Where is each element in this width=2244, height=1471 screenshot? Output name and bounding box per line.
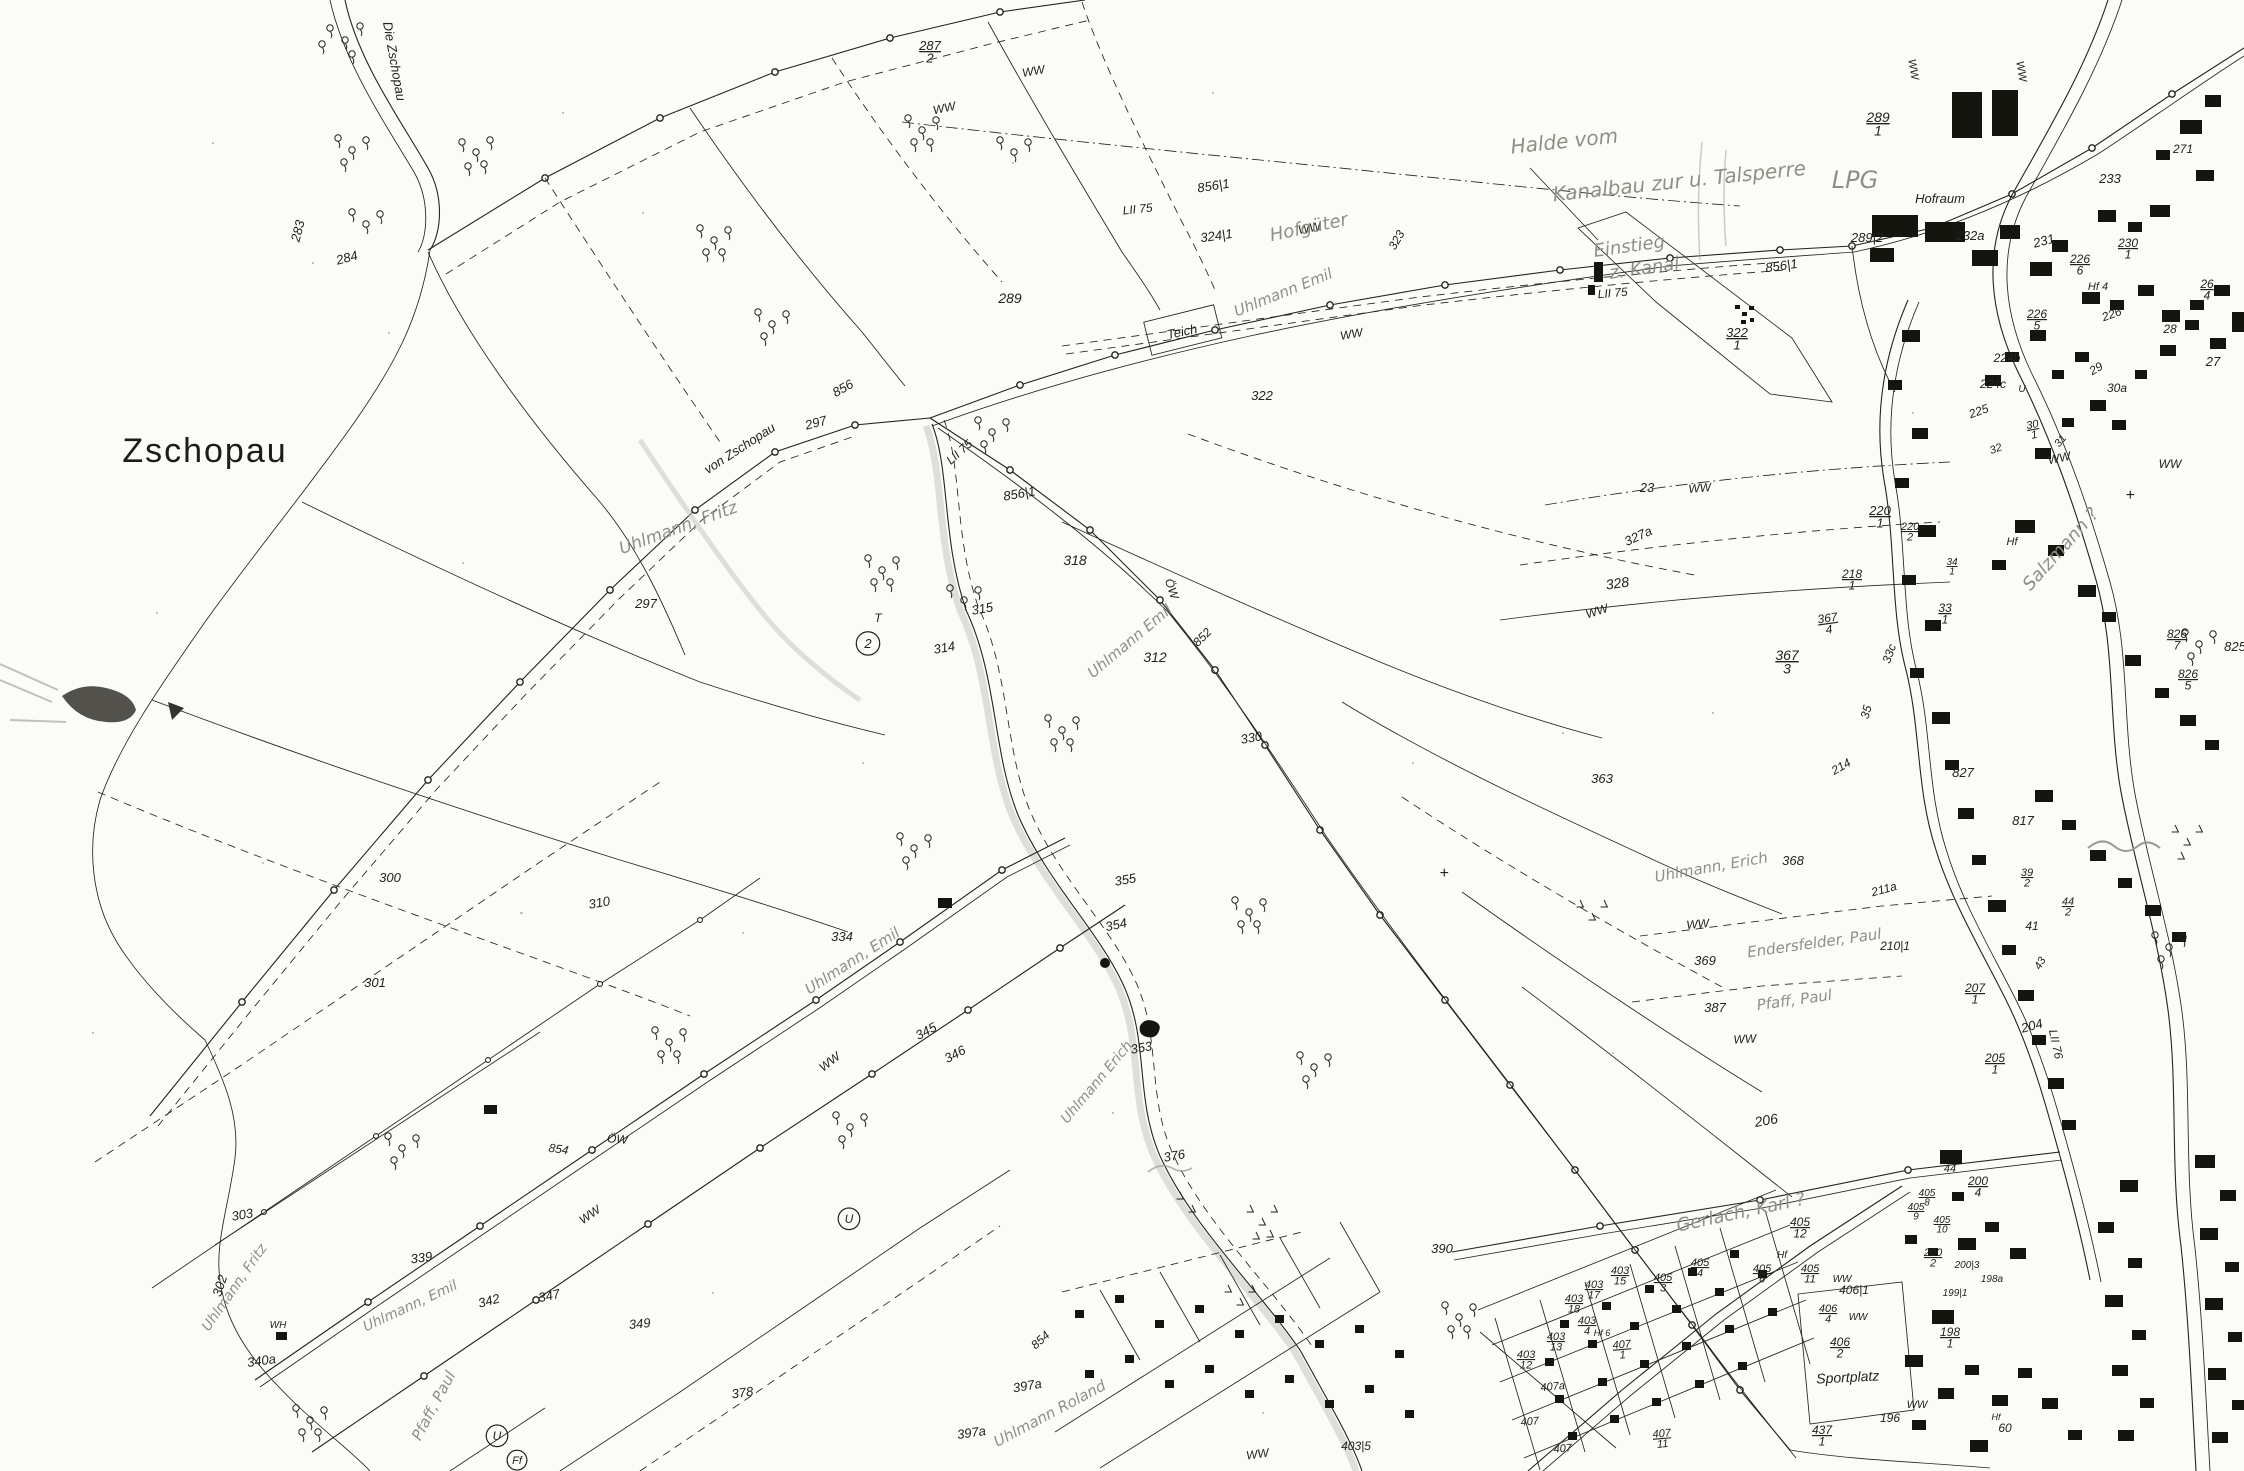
- svg-text:376: 376: [1162, 1146, 1187, 1165]
- svg-text:35: 35: [1858, 703, 1875, 720]
- svg-text:WW: WW: [816, 1048, 844, 1074]
- map-label-403-15: 40315: [1611, 1265, 1630, 1287]
- svg-text:852: 852: [1190, 625, 1214, 649]
- map-label-323: 323: [1385, 228, 1407, 253]
- svg-text:Hf: Hf: [1992, 1412, 2002, 1422]
- map-label-43: 43: [2032, 954, 2049, 971]
- map-label-271: 271: [2172, 142, 2193, 156]
- map-label-363: 363: [1591, 771, 1613, 786]
- svg-text:40315: 40315: [1611, 1265, 1630, 1287]
- svg-text:334: 334: [831, 929, 853, 944]
- map-label-sportplatz: Sportplatz: [1816, 1367, 1880, 1386]
- svg-text:346: 346: [942, 1042, 969, 1066]
- map-label-314: 314: [932, 638, 956, 657]
- map-label-230-1: 2301: [2117, 236, 2138, 261]
- map-label-hf-6: Hf 6: [1594, 1328, 1611, 1338]
- svg-text:60: 60: [1998, 1421, 2012, 1435]
- svg-text:Uhlmann, Fritz: Uhlmann, Fritz: [199, 1241, 271, 1335]
- svg-text:40313: 40313: [1547, 1331, 1566, 1353]
- svg-text:856|1: 856|1: [1196, 176, 1230, 196]
- map-label-322-1: 3221: [1726, 325, 1748, 352]
- svg-text:Uhlmann Erich: Uhlmann Erich: [1058, 1038, 1136, 1127]
- map-label-403-5: 403|5: [1341, 1439, 1371, 1453]
- svg-text:Pfaff, Paul: Pfaff, Paul: [408, 1367, 460, 1443]
- svg-text:301: 301: [2025, 418, 2042, 442]
- map-label-403-12: 40312: [1517, 1349, 1536, 1371]
- map-label-ww: WW: [1907, 1399, 1929, 1411]
- svg-text:32: 32: [1988, 441, 2004, 456]
- svg-text:300: 300: [379, 870, 401, 885]
- map-label-376: 376: [1162, 1146, 1187, 1165]
- svg-text:2872: 2872: [918, 38, 941, 65]
- map-label-ww: WW: [1733, 1031, 1758, 1046]
- svg-text:Pfaff, Paul: Pfaff, Paul: [1756, 986, 1834, 1014]
- map-label-342: 342: [476, 1290, 502, 1310]
- svg-text:WW: WW: [1907, 1399, 1929, 1411]
- map-label-207-1: 2071: [1964, 981, 1986, 1006]
- map-label-uhlmann-emil: Uhlmann Emil: [1231, 264, 1336, 320]
- map-label-403-18: 40318: [1565, 1293, 1584, 1315]
- map-label-353: 353: [1129, 1038, 1154, 1057]
- svg-text:856: 856: [830, 376, 857, 400]
- svg-text:198a: 198a: [1981, 1274, 2004, 1285]
- svg-text:40317: 40317: [1585, 1279, 1604, 1301]
- map-label-289: 289: [997, 290, 1022, 306]
- canal-stream: [926, 420, 1362, 1471]
- map-label-halde-vom: Halde vom: [1509, 123, 1619, 158]
- map-label-406-2: 4062: [1830, 1335, 1850, 1360]
- svg-text:Gerlach, Karl ?: Gerlach, Karl ?: [1675, 1189, 1808, 1237]
- map-label-w: ÖW: [606, 1131, 629, 1147]
- svg-text:324|1: 324|1: [1199, 226, 1233, 245]
- svg-text:44: 44: [1944, 1163, 1956, 1175]
- map-label-hf: Hf: [2007, 536, 2019, 548]
- svg-text:WW: WW: [2159, 457, 2183, 471]
- map-label-ww: WW: [1849, 1312, 1869, 1323]
- map-label-347: 347: [537, 1286, 562, 1305]
- svg-text:LPG: LPG: [1832, 166, 1878, 194]
- map-label-405-12: 40512: [1790, 1215, 1810, 1240]
- svg-text:Hofraum: Hofraum: [1915, 191, 1965, 206]
- svg-text:312: 312: [1143, 649, 1167, 665]
- svg-text:339: 339: [410, 1249, 434, 1267]
- map-label-28: 28: [2162, 322, 2177, 336]
- map-label-407a: 407a: [1540, 1380, 1565, 1394]
- map-label-405-3: 4053: [1654, 1272, 1673, 1294]
- svg-text:264: 264: [2199, 277, 2214, 302]
- map-label-437-1: 4371: [1812, 1423, 1833, 1448]
- map-label-ww: WW: [1905, 58, 1921, 82]
- svg-text:322: 322: [1251, 388, 1273, 403]
- svg-text:+: +: [1439, 865, 1448, 882]
- map-label-378: 378: [731, 1384, 755, 1402]
- map-label-w: ÖW: [1162, 577, 1182, 603]
- svg-text:856|1: 856|1: [1002, 483, 1036, 503]
- map-label-33c: 33c: [1879, 642, 1899, 665]
- map-label-u: U: [486, 1425, 508, 1447]
- map-label-355: 355: [1113, 870, 1138, 889]
- svg-text:28: 28: [2162, 322, 2177, 336]
- map-label-826-5: 8265: [2178, 667, 2198, 692]
- svg-text:283: 283: [287, 218, 308, 245]
- svg-text:40511: 40511: [1801, 1263, 1820, 1285]
- map-label-334: 334: [831, 929, 853, 944]
- map-label-60: 60: [1998, 1421, 2012, 1435]
- map-label-283: 283: [287, 218, 308, 245]
- svg-text:196: 196: [1880, 1411, 1900, 1425]
- svg-text:407: 407: [1553, 1442, 1573, 1456]
- map-label-27: 27: [2205, 354, 2221, 369]
- map-label-346: 346: [942, 1042, 969, 1066]
- map-label-44: 44: [1944, 1163, 1956, 1175]
- map-label-318: 318: [1063, 552, 1087, 568]
- sportplatz-outline: [1798, 1282, 1914, 1424]
- svg-text:284: 284: [333, 248, 359, 268]
- map-label-hofg-ter: Hofgüter: [1268, 209, 1351, 246]
- svg-text:289: 289: [997, 290, 1022, 306]
- svg-text:WW: WW: [1905, 58, 1921, 82]
- svg-text:WW: WW: [1021, 62, 1047, 80]
- svg-text:WW: WW: [1849, 1312, 1869, 1323]
- map-label-hf-4: Hf 4: [2088, 281, 2108, 293]
- svg-text:Uhlmann Emil: Uhlmann Emil: [1231, 264, 1336, 320]
- map-label-wh: WH: [270, 1320, 287, 1331]
- map-label-lii-75: LII 75: [943, 437, 975, 468]
- map-label-322: 322: [1251, 388, 1273, 403]
- svg-text:342: 342: [476, 1290, 502, 1310]
- map-label-198a: 198a: [1981, 1274, 2004, 1285]
- map-label-32: 32: [1988, 441, 2004, 456]
- map-label-854: 854: [1028, 1328, 1052, 1352]
- svg-text:ÖW: ÖW: [1162, 577, 1182, 603]
- svg-text:8265: 8265: [2178, 667, 2198, 692]
- svg-text:4054: 4054: [1691, 1257, 1710, 1279]
- svg-text:206: 206: [1752, 1110, 1779, 1130]
- svg-text:854: 854: [1028, 1328, 1052, 1352]
- map-label-endersfelder-paul: Endersfelder, Paul: [1746, 925, 1883, 962]
- map-label-405-10: 40510: [1934, 1215, 1951, 1236]
- svg-text:2202: 2202: [1900, 521, 1920, 543]
- map-label-204: 204: [2018, 1016, 2044, 1036]
- map-label-856-1: 856|1: [1764, 256, 1798, 275]
- map-label-von-zschopau: von Zschopau: [701, 420, 778, 477]
- map-label-hofraum: Hofraum: [1915, 191, 1965, 206]
- map-label-200-3: 200|3: [1954, 1260, 1980, 1271]
- svg-text:392: 392: [2021, 867, 2033, 889]
- map-label-ww: WW: [1339, 325, 1365, 343]
- map-label-uhlmann-emil: Uhlmann Emil: [1084, 600, 1176, 682]
- svg-text:340a: 340a: [246, 1351, 277, 1370]
- map-label-uhlmann-fritz: Uhlmann, Fritz: [616, 497, 741, 559]
- map-label-297: 297: [802, 412, 829, 433]
- svg-text:354: 354: [1104, 915, 1128, 934]
- svg-text:WW: WW: [576, 1202, 604, 1227]
- map-canvas: ZschopauDie Zschopau2832842872WWWW289297…: [0, 0, 2244, 1471]
- svg-text:LII 75: LII 75: [1597, 285, 1628, 302]
- map-label-856-1: 856|1: [1196, 176, 1230, 196]
- map-label-403-13: 40313: [1547, 1331, 1566, 1353]
- svg-text:Hf 4: Hf 4: [2088, 281, 2108, 293]
- map-label-397a: 397a: [956, 1423, 987, 1442]
- svg-text:345: 345: [913, 1019, 940, 1043]
- map-label-2: 2: [856, 632, 879, 655]
- map-label-ww: WW: [2159, 457, 2183, 471]
- map-label-289-1: 2891: [1865, 109, 1890, 138]
- svg-text:199|1: 199|1: [1943, 1288, 1968, 1299]
- map-label-200-2: 2002: [1923, 1247, 1943, 1269]
- map-label-369: 369: [1694, 953, 1716, 968]
- svg-text:Uhlmann Roland: Uhlmann Roland: [991, 1376, 1110, 1450]
- svg-text:WW: WW: [2013, 60, 2029, 84]
- svg-text:43: 43: [2032, 954, 2049, 971]
- svg-text:1981: 1981: [1940, 1325, 1960, 1350]
- svg-text:Endersfelder, Paul: Endersfelder, Paul: [1746, 925, 1883, 962]
- svg-text:341: 341: [1946, 557, 1958, 578]
- map-label-405-6: 4056: [1753, 1263, 1772, 1285]
- map-label-die-zschopau: Die Zschopau: [380, 20, 409, 102]
- map-label-397a: 397a: [1012, 1376, 1043, 1396]
- map-label-367-4: 3674: [1817, 610, 1842, 638]
- svg-text:30a: 30a: [2107, 381, 2127, 395]
- svg-text:225: 225: [1966, 401, 1991, 421]
- svg-text:232a: 232a: [1955, 228, 1985, 243]
- svg-text:403|5: 403|5: [1341, 1439, 1371, 1453]
- svg-text:8267: 8267: [2167, 627, 2187, 652]
- map-label-210-1: 210|1: [1879, 939, 1910, 953]
- map-label-gerlach-karl: Gerlach, Karl ?: [1675, 1189, 1808, 1237]
- map-label-220-2: 2202: [1900, 521, 1920, 543]
- svg-text:2301: 2301: [2117, 236, 2138, 261]
- map-label-368: 368: [1782, 853, 1804, 868]
- svg-text:363: 363: [1591, 771, 1613, 786]
- svg-text:ÖW: ÖW: [606, 1131, 629, 1147]
- svg-text:353: 353: [1129, 1038, 1154, 1057]
- svg-text:Salzmann ?: Salzmann ?: [2018, 503, 2103, 594]
- map-label-827: 827: [1952, 765, 1974, 780]
- svg-text:27: 27: [2205, 354, 2221, 369]
- svg-text:825: 825: [2224, 639, 2244, 654]
- map-label-405-4: 4054: [1691, 1257, 1710, 1279]
- svg-text:827: 827: [1952, 765, 1974, 780]
- svg-text:40312: 40312: [1517, 1349, 1536, 1371]
- svg-text:Uhlmann, Erich: Uhlmann, Erich: [1653, 848, 1769, 886]
- map-label-uhlmann-emil: Uhlmann, Emil: [361, 1277, 460, 1335]
- map-label-218-1: 2181: [1841, 567, 1862, 592]
- map-label-367-3: 3673: [1775, 647, 1800, 676]
- map-label-ff: Ff: [507, 1450, 527, 1470]
- pencil-marks: [0, 142, 2160, 1172]
- svg-text:WW: WW: [1686, 916, 1711, 932]
- svg-text:817: 817: [2012, 813, 2034, 828]
- map-label-214: 214: [1828, 755, 1853, 778]
- map-label-354: 354: [1104, 915, 1128, 934]
- svg-text:315: 315: [970, 599, 995, 618]
- svg-text:U: U: [493, 1429, 502, 1443]
- svg-text:318: 318: [1063, 552, 1087, 568]
- road-von-zschopau: [150, 418, 930, 1126]
- svg-text:LII 75: LII 75: [1122, 200, 1154, 217]
- map-label-406-1: 406|1: [1839, 1283, 1869, 1297]
- svg-text:407: 407: [1520, 1415, 1540, 1429]
- svg-text:200|3: 200|3: [1954, 1260, 1980, 1271]
- map-label-pfaff-paul: Pfaff, Paul: [408, 1367, 460, 1443]
- svg-text:WW: WW: [932, 99, 959, 118]
- svg-text:314: 314: [932, 638, 956, 657]
- svg-text:224c: 224c: [1979, 377, 2006, 391]
- map-label-403-17: 40317: [1585, 1279, 1604, 1301]
- svg-text:Die Zschopau: Die Zschopau: [380, 20, 409, 102]
- map-label-310: 310: [587, 893, 612, 912]
- svg-text:40318: 40318: [1565, 1293, 1584, 1315]
- svg-text:310: 310: [587, 893, 612, 912]
- map-label-330: 330: [1239, 728, 1264, 747]
- svg-text:WW: WW: [1584, 601, 1611, 622]
- map-label-405-9: 4059: [1908, 1202, 1925, 1223]
- svg-text:349: 349: [628, 1315, 651, 1332]
- svg-text:4056: 4056: [1753, 1263, 1772, 1285]
- map-label-284: 284: [333, 248, 359, 268]
- svg-text:233: 233: [2098, 171, 2121, 186]
- map-label-: +: [2125, 487, 2134, 504]
- map-label-teich: Teich: [1166, 321, 1199, 342]
- map-label-287-2: 2872: [918, 38, 941, 65]
- svg-text:WW: WW: [1339, 325, 1365, 343]
- svg-text:387: 387: [1704, 1000, 1726, 1015]
- svg-text:31: 31: [2052, 433, 2069, 450]
- svg-text:von Zschopau: von Zschopau: [701, 420, 778, 477]
- svg-text:2002: 2002: [1923, 1247, 1943, 1269]
- svg-text:Sportplatz: Sportplatz: [1816, 1367, 1880, 1386]
- svg-text:Uhlmann, Fritz: Uhlmann, Fritz: [616, 497, 741, 559]
- svg-text:WH: WH: [270, 1320, 287, 1331]
- map-label-ww: WW: [2013, 60, 2029, 84]
- svg-text:U: U: [2018, 384, 2026, 395]
- map-label-856: 856: [830, 376, 857, 400]
- svg-text:378: 378: [731, 1384, 755, 1402]
- svg-text:Uhlmann, Emil: Uhlmann, Emil: [361, 1277, 460, 1335]
- svg-text:Kanalbau zur u. Talsperre: Kanalbau zur u. Talsperre: [1552, 156, 1807, 206]
- map-label-35: 35: [1858, 703, 1875, 720]
- svg-text:Halde vom: Halde vom: [1509, 123, 1619, 158]
- svg-text:4071: 4071: [1612, 1338, 1633, 1362]
- map-label-t: T: [874, 611, 883, 625]
- svg-text:2181: 2181: [1841, 567, 1862, 592]
- svg-text:330: 330: [1239, 728, 1264, 747]
- svg-text:4062: 4062: [1830, 1335, 1850, 1360]
- map-label-233: 233: [2098, 171, 2121, 186]
- svg-text:368: 368: [1782, 853, 1804, 868]
- map-label-224c: 224c: [1979, 377, 2006, 391]
- svg-text:2071: 2071: [1964, 981, 1986, 1006]
- map-label-406-4: 4064: [1819, 1303, 1838, 1325]
- svg-text:210|1: 210|1: [1879, 939, 1910, 953]
- map-label-407: 407: [1520, 1415, 1540, 1429]
- map-label-ww: WW: [1021, 62, 1047, 80]
- svg-text:406|1: 406|1: [1839, 1283, 1869, 1297]
- svg-text:397a: 397a: [1012, 1376, 1043, 1396]
- svg-text:U: U: [845, 1212, 854, 1226]
- svg-text:407a: 407a: [1540, 1380, 1565, 1394]
- svg-text:40711: 40711: [1652, 1427, 1673, 1451]
- map-label-uhlmann-roland: Uhlmann Roland: [991, 1376, 1110, 1450]
- map-label-uhlmann-erich: Uhlmann, Erich: [1653, 848, 1769, 886]
- svg-text:369: 369: [1694, 953, 1716, 968]
- map-label-225: 225: [1966, 401, 1991, 421]
- svg-text:2266: 2266: [2069, 252, 2090, 277]
- svg-text:LII 75: LII 75: [943, 437, 975, 468]
- svg-text:4371: 4371: [1812, 1423, 1833, 1448]
- map-label-315: 315: [970, 599, 995, 618]
- svg-text:40512: 40512: [1790, 1215, 1810, 1240]
- svg-text:224b: 224b: [1993, 351, 2021, 365]
- map-label-kanalbau-zur-u-talsperre: Kanalbau zur u. Talsperre: [1552, 156, 1807, 206]
- svg-text:323: 323: [1385, 228, 1407, 253]
- map-label-854: 854: [548, 1141, 570, 1158]
- map-label-41: 41: [2025, 919, 2038, 933]
- svg-text:397a: 397a: [956, 1423, 987, 1442]
- svg-text:Hf 6: Hf 6: [1594, 1328, 1611, 1338]
- svg-text:WW: WW: [1688, 480, 1713, 496]
- svg-text:3221: 3221: [1726, 325, 1748, 352]
- svg-text:289|2: 289|2: [1850, 230, 1884, 245]
- svg-text:301: 301: [364, 975, 386, 990]
- map-label-u: U: [838, 1208, 860, 1230]
- map-label-198-1: 1981: [1940, 1325, 1960, 1350]
- map-label-23: 23: [1639, 480, 1655, 495]
- svg-text:2265: 2265: [2026, 307, 2047, 332]
- map-label-salzmann: Salzmann ?: [2018, 503, 2103, 594]
- map-label-297: 297: [634, 596, 657, 611]
- map-label-324-1: 324|1: [1199, 226, 1233, 245]
- map-label-387: 387: [1704, 1000, 1726, 1015]
- map-label-lii-75: LII 75: [1122, 200, 1154, 217]
- map-label-44-2: 442: [2062, 896, 2074, 918]
- svg-text:2051: 2051: [1984, 1051, 2005, 1076]
- svg-text:211a: 211a: [1869, 879, 1899, 900]
- map-label-856-1: 856|1: [1002, 483, 1036, 503]
- map-label-ww: WW: [1686, 916, 1711, 932]
- map-label-hf: Hf: [1992, 1412, 2002, 1422]
- svg-text:Hf: Hf: [2007, 536, 2019, 548]
- svg-text:204: 204: [2018, 1016, 2044, 1036]
- svg-text:Ff: Ff: [512, 1455, 523, 1467]
- svg-text:347: 347: [537, 1286, 562, 1305]
- map-label-390: 390: [1431, 1241, 1453, 1256]
- map-label-340a: 340a: [246, 1351, 277, 1370]
- map-label-345: 345: [913, 1019, 940, 1043]
- map-label-289-2: 289|2: [1850, 230, 1884, 245]
- map-label-327a: 327a: [1622, 523, 1655, 549]
- map-label-31: 31: [2052, 433, 2069, 450]
- map-label-zschopau: Zschopau: [122, 432, 287, 470]
- map-label-uhlmann-fritz: Uhlmann, Fritz: [199, 1241, 271, 1335]
- map-label-232a: 232a: [1955, 228, 1985, 243]
- map-label-407-1: 4071: [1612, 1338, 1633, 1362]
- map-label-26-4: 264: [2199, 277, 2214, 302]
- svg-text:4059: 4059: [1908, 1202, 1925, 1223]
- map-sheet: ZschopauDie Zschopau2832842872WWWW289297…: [0, 0, 2244, 1471]
- map-label-205-1: 2051: [1984, 1051, 2005, 1076]
- map-label-199-1: 199|1: [1943, 1288, 1968, 1299]
- map-label-uhlmann-erich: Uhlmann Erich: [1058, 1038, 1136, 1127]
- map-label-407-11: 40711: [1652, 1427, 1673, 1451]
- map-label-u: U: [2018, 384, 2026, 395]
- map-label-30a: 30a: [2107, 381, 2127, 395]
- map-label-196: 196: [1880, 1411, 1900, 1425]
- map-label-300: 300: [379, 870, 401, 885]
- map-label-339: 339: [410, 1249, 434, 1267]
- svg-text:328: 328: [1605, 573, 1631, 592]
